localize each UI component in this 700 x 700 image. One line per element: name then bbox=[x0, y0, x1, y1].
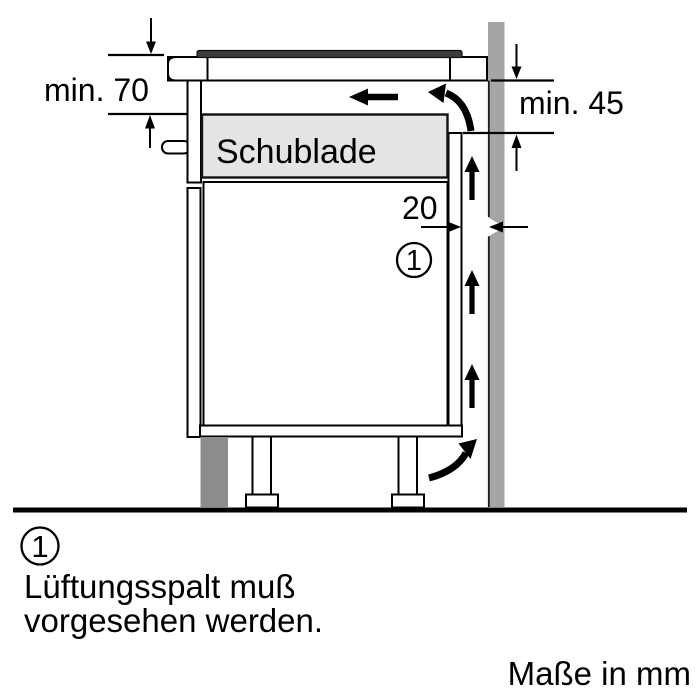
wall bbox=[488, 22, 505, 507]
dim70-arrow-down-head bbox=[146, 42, 156, 55]
footnote-line2: vorgesehen werden. bbox=[24, 602, 323, 639]
right-foot-base bbox=[392, 495, 424, 508]
floor-line bbox=[13, 508, 687, 513]
drawer-label: Schublade bbox=[216, 133, 377, 171]
callout-number: 1 bbox=[406, 245, 422, 277]
hob-glass bbox=[197, 51, 462, 58]
right-foot-stem bbox=[399, 437, 418, 496]
airflow-left-arrow bbox=[349, 89, 398, 106]
airflow-up-arrow-1 bbox=[465, 156, 480, 200]
hob-installation-diagram: Schublade min. 70 min. 45 20 1 1 Lüftung… bbox=[0, 0, 700, 700]
worktop-body bbox=[168, 57, 487, 81]
worktop-front-edge bbox=[168, 57, 208, 81]
dim45-arrow-down-head bbox=[512, 67, 522, 80]
cabinet-back-panel bbox=[449, 133, 462, 426]
cabinet-bottom-panel bbox=[200, 426, 462, 437]
airflow-curved-arrow-bottom bbox=[429, 453, 466, 478]
hob-clamp bbox=[162, 141, 190, 154]
airflow-up-arrow-3 bbox=[465, 364, 480, 408]
units-note: Maße in mm bbox=[508, 655, 691, 692]
dim70-label: min. 70 bbox=[44, 72, 149, 108]
airflow-curved-arrow-top-head bbox=[428, 84, 446, 104]
left-foot-base bbox=[246, 495, 278, 508]
dim70-arrow-up-head bbox=[145, 115, 155, 129]
installation-diagram-page: Schublade min. 70 min. 45 20 1 1 Lüftung… bbox=[0, 0, 700, 700]
worktop-rear-section bbox=[450, 57, 487, 81]
footnote-line1: Lüftungsspalt muß bbox=[24, 568, 295, 605]
dim45-arrow-up-head bbox=[512, 135, 522, 149]
dim45-label: min. 45 bbox=[519, 85, 624, 121]
airflow-curved-arrow-top bbox=[446, 93, 471, 131]
left-foot-stem bbox=[253, 437, 272, 496]
plinth-panel bbox=[201, 437, 229, 507]
footnote-number: 1 bbox=[31, 529, 48, 564]
cabinet-left-panel bbox=[188, 188, 201, 437]
hob-rail bbox=[188, 81, 202, 183]
airflow-up-arrow-2 bbox=[465, 270, 480, 314]
dim20-label: 20 bbox=[402, 190, 438, 226]
